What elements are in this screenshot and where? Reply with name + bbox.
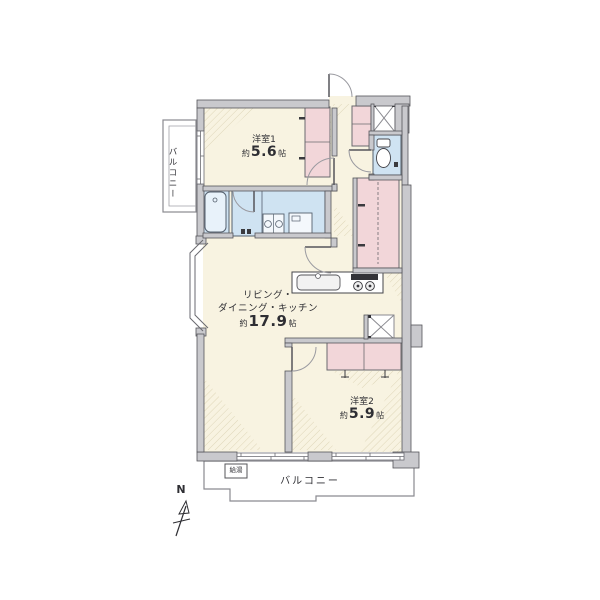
room1-balcony-window xyxy=(197,131,204,184)
washroom xyxy=(232,189,325,236)
room2-size-prefix: 約 xyxy=(340,411,348,420)
entrance-shoe-cabinet xyxy=(352,106,371,146)
room1-size-unit: 帖 xyxy=(278,149,286,158)
floorplan-image: 洋室1 約5.6帖 リビング・ ダイニング・キッチン 約17.9帖 洋室2 約5… xyxy=(0,0,600,600)
compass-north-label: N xyxy=(170,483,192,496)
pipe-space-middle xyxy=(368,315,394,339)
room2-size-value: 5.9 xyxy=(348,406,376,422)
ldk-size-unit: 帖 xyxy=(289,319,297,328)
room1-size-value: 5.6 xyxy=(250,144,278,160)
stove-top xyxy=(351,274,378,280)
room2-balcony-window xyxy=(332,453,404,460)
ldk-size: 約17.9帖 xyxy=(188,315,348,330)
hall-closet xyxy=(357,178,399,268)
ldk-label: リビング・ ダイニング・キッチン 約17.9帖 xyxy=(188,290,348,330)
ldk-name-line1: リビング・ xyxy=(188,290,348,303)
bathroom xyxy=(202,189,229,236)
toilet-bowl xyxy=(377,149,391,168)
north-arrow-icon xyxy=(173,501,190,536)
room2-label: 洋室2 約5.9帖 xyxy=(320,397,404,422)
toilet-tank xyxy=(377,139,390,147)
pipe-space-top xyxy=(373,104,395,132)
balcony-left-label: バルコニー xyxy=(167,137,177,209)
room1-size: 約5.6帖 xyxy=(222,146,306,160)
entrance-door xyxy=(329,74,352,97)
ldk-size-value: 17.9 xyxy=(247,312,288,330)
room2-size-unit: 帖 xyxy=(376,411,384,420)
room1-size-prefix: 約 xyxy=(242,149,250,158)
ldk-balcony-window xyxy=(237,453,308,460)
room1-label: 洋室1 約5.6帖 xyxy=(222,135,306,160)
toilet-room xyxy=(373,135,401,175)
room2-size: 約5.9帖 xyxy=(320,408,404,422)
balcony-bottom-label: バルコニー xyxy=(262,476,358,488)
utility-box-label: 給湯 xyxy=(225,464,247,478)
